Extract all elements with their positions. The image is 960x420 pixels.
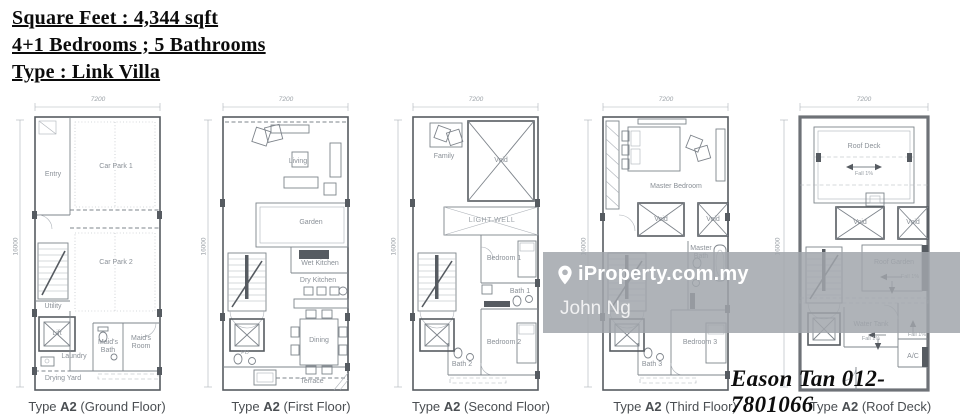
- width-dimension: 7200: [469, 96, 483, 103]
- square-feet-line: Square Feet : 4,344 sqft: [12, 5, 266, 32]
- room-label: Family: [434, 153, 455, 161]
- height-dimension: 16000: [391, 227, 398, 267]
- room-label: Wet Kitchen: [301, 260, 339, 268]
- room-label: Maid's Bath: [93, 339, 123, 355]
- ground-floor-drawing: [8, 95, 186, 407]
- room-label: Drying Yard: [45, 375, 81, 383]
- room-label: Terrace: [300, 378, 323, 386]
- roof-deck-drawing: [770, 95, 960, 407]
- room-label: PD: [241, 350, 249, 356]
- width-dimension: 7200: [857, 96, 871, 103]
- caption-suffix: (First Floor): [283, 399, 350, 414]
- room-label: Utility: [44, 303, 61, 311]
- caption-suffix: (Second Floor): [464, 399, 550, 414]
- room-label: Bedroom 3: [683, 339, 717, 347]
- width-dimension: 7200: [91, 96, 105, 103]
- room-label: Lift: [52, 330, 61, 338]
- room-label: Bath 2: [452, 361, 472, 369]
- room-label: Garden: [299, 219, 322, 227]
- room-label: Void: [853, 219, 867, 227]
- room-label: A/C: [907, 353, 919, 361]
- room-label: Void: [706, 216, 720, 224]
- caption-prefix: Type: [231, 399, 259, 414]
- caption-ground-floor: Type A2 (Ground Floor): [8, 399, 186, 414]
- caption-code: A2: [645, 399, 662, 414]
- listing-header: Square Feet : 4,344 sqft 4+1 Bedrooms ; …: [12, 5, 266, 86]
- floor-plan-sheet: { "header": { "line1": "Square Feet : 4,…: [0, 0, 960, 420]
- agent-contact: Eason Tan 012-7801066: [731, 366, 960, 418]
- watermark-overlay: iProperty.com.my John Ng: [543, 252, 960, 333]
- third-floor-drawing: [576, 95, 754, 407]
- fall-annotation: Fall 1%: [862, 336, 880, 342]
- room-label: Bath 1: [510, 288, 530, 296]
- room-label: Void: [654, 216, 668, 224]
- room-label: Bedroom 1: [487, 255, 521, 263]
- room-label: Car Park 2: [99, 259, 132, 267]
- first-floor-drawing: [196, 95, 374, 407]
- room-label: Void: [906, 219, 920, 227]
- room-label: LIGHT WELL: [469, 217, 516, 225]
- watermark-user: John Ng: [560, 298, 631, 320]
- type-line: Type : Link Villa: [12, 59, 266, 86]
- caption-prefix: Type: [613, 399, 641, 414]
- room-label: Bath 3: [642, 361, 662, 369]
- room-label: Roof Deck: [848, 143, 881, 151]
- watermark-brand-text: iProperty.com.my: [578, 263, 749, 286]
- width-dimension: 7200: [279, 96, 293, 103]
- roof-deck-plan: 7200 16000 Roof Deck Fall 1% Void Void R…: [770, 95, 960, 407]
- first-floor-plan: 7200 16000 Living Garden Wet Kitchen Dry…: [196, 95, 374, 407]
- room-label: Laundry: [61, 353, 86, 361]
- caption-first-floor: Type A2 (First Floor): [196, 399, 386, 414]
- caption-second-floor: Type A2 (Second Floor): [386, 399, 576, 414]
- height-dimension: 16000: [201, 227, 208, 267]
- caption-prefix: Type: [28, 399, 56, 414]
- room-label: Master Bedroom: [650, 183, 702, 191]
- caption-code: A2: [444, 399, 461, 414]
- room-label: Living: [289, 158, 307, 166]
- second-floor-plan: 7200 16000 Family Void LIGHT WELL Bedroo…: [386, 95, 564, 407]
- caption-suffix: (Ground Floor): [80, 399, 165, 414]
- width-dimension: 7200: [659, 96, 673, 103]
- room-label: Maid's Room: [126, 335, 156, 351]
- room-label: Dry Kitchen: [300, 277, 336, 285]
- room-label: Bedroom 2: [487, 339, 521, 347]
- ground-floor-plan: 7200 16000 Entry Car Park 1 Car Park 2 U…: [8, 95, 186, 407]
- room-label: Entry: [45, 171, 61, 179]
- caption-code: A2: [263, 399, 280, 414]
- fall-annotation: Fall 1%: [855, 171, 873, 177]
- third-floor-plan: 7200 16000 Master Bedroom Void Void Mast…: [576, 95, 754, 407]
- room-label: Void: [494, 157, 508, 165]
- caption-code: A2: [60, 399, 77, 414]
- room-label: Car Park 1: [99, 163, 132, 171]
- watermark-brand: iProperty.com.my: [557, 263, 749, 286]
- height-dimension: 16000: [13, 227, 20, 267]
- second-floor-drawing: [386, 95, 564, 407]
- map-pin-icon: [557, 265, 573, 285]
- caption-prefix: Type: [412, 399, 440, 414]
- bedrooms-bathrooms-line: 4+1 Bedrooms ; 5 Bathrooms: [12, 32, 266, 59]
- room-label: Dining: [309, 337, 329, 345]
- caption-suffix: (Third Floor): [665, 399, 737, 414]
